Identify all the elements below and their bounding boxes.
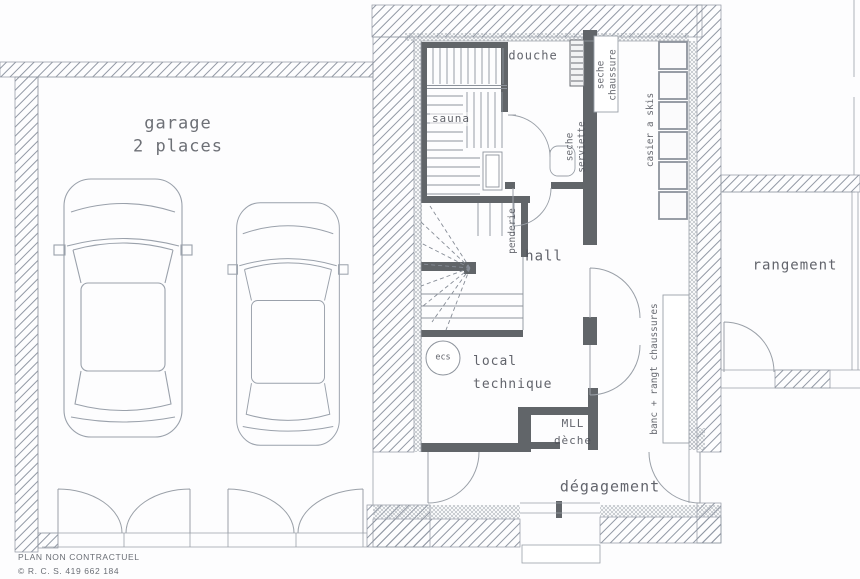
floor-plan-page: garage 2 places douche sauna seche servi…: [0, 0, 860, 579]
label-seche-chaussure: seche chaussure: [596, 49, 621, 100]
seche-serviette-line2: serviette: [577, 121, 589, 172]
room-label-hall: hall: [525, 248, 563, 266]
floor-plan-drawing: [0, 0, 860, 579]
paper: [0, 0, 860, 579]
label-ecs: ecs: [435, 353, 450, 364]
room-label-local: local: [473, 354, 517, 370]
room-label-degagement: dégagement: [560, 478, 660, 497]
seche-serviette-line1: seche: [565, 121, 577, 172]
label-mll: MLL: [562, 417, 585, 431]
seche-chaussure-line1: seche: [596, 49, 608, 100]
label-seche-serviette: seche serviette: [565, 121, 590, 172]
plan-disclaimer: PLAN NON CONTRACTUEL: [18, 552, 140, 562]
towel-radiator-icon: [570, 40, 584, 86]
room-label-sauna: sauna: [430, 112, 472, 126]
seche-chaussure-line2: chaussure: [608, 49, 620, 100]
room-label-douche: douche: [508, 49, 557, 64]
bench-shoe-storage: [663, 295, 689, 443]
label-penderie: penderie: [507, 208, 519, 254]
label-banc: banc + rangt chaussures: [649, 303, 661, 435]
room-label-technique: technique: [473, 377, 552, 393]
room-label-rangement: rangement: [753, 257, 838, 275]
plan-rcs-number: © R. C. S. 419 662 184: [18, 566, 119, 576]
label-seche-linge: dèche: [554, 434, 592, 448]
garage-label-line2: 2 places: [133, 136, 223, 157]
label-casier-skis: casier a skis: [645, 93, 657, 167]
garage-label-line1: garage: [144, 113, 211, 134]
